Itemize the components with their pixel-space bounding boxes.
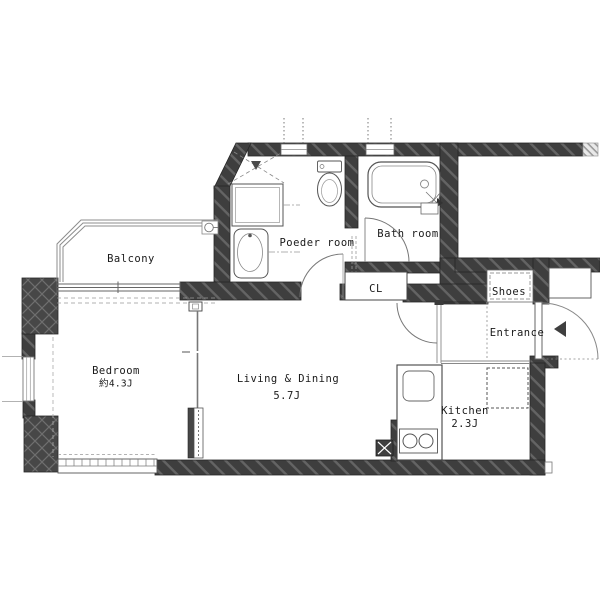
kitchen-label: Kitchen (441, 405, 489, 417)
living-dining-label: Living & Dining (237, 373, 339, 385)
floor-plan-page: Balcony Bedroom 約4.3J Living & Dining 5.… (0, 0, 600, 600)
kitchen-area-label: 2.3J (451, 418, 478, 430)
bedroom-area-label: 約4.3J (99, 378, 133, 390)
bedroom-label: Bedroom (92, 365, 140, 377)
pipe-shaft (376, 440, 393, 456)
kitchen-counter (397, 365, 442, 460)
toilet (318, 161, 342, 206)
bath-room-label: Bath room (377, 228, 438, 240)
closet-label: CL (369, 283, 383, 295)
entrance-label: Entrance (490, 327, 545, 339)
wall-break-symbol (583, 143, 598, 156)
meter-box (549, 268, 591, 298)
bathtub (368, 162, 443, 214)
exterior-pipe-mark (545, 462, 552, 473)
living-dining-area-label: 5.7J (273, 390, 300, 402)
balcony-label: Balcony (107, 253, 155, 265)
shoes-label: Shoes (492, 286, 526, 298)
balcony-drain (202, 221, 218, 234)
powder-room-label: Poeder room (279, 237, 354, 249)
gas-stove (400, 429, 438, 453)
kitchen-sink (403, 371, 434, 401)
floor-plan-drawing: Balcony Bedroom 約4.3J Living & Dining 5.… (0, 0, 600, 600)
